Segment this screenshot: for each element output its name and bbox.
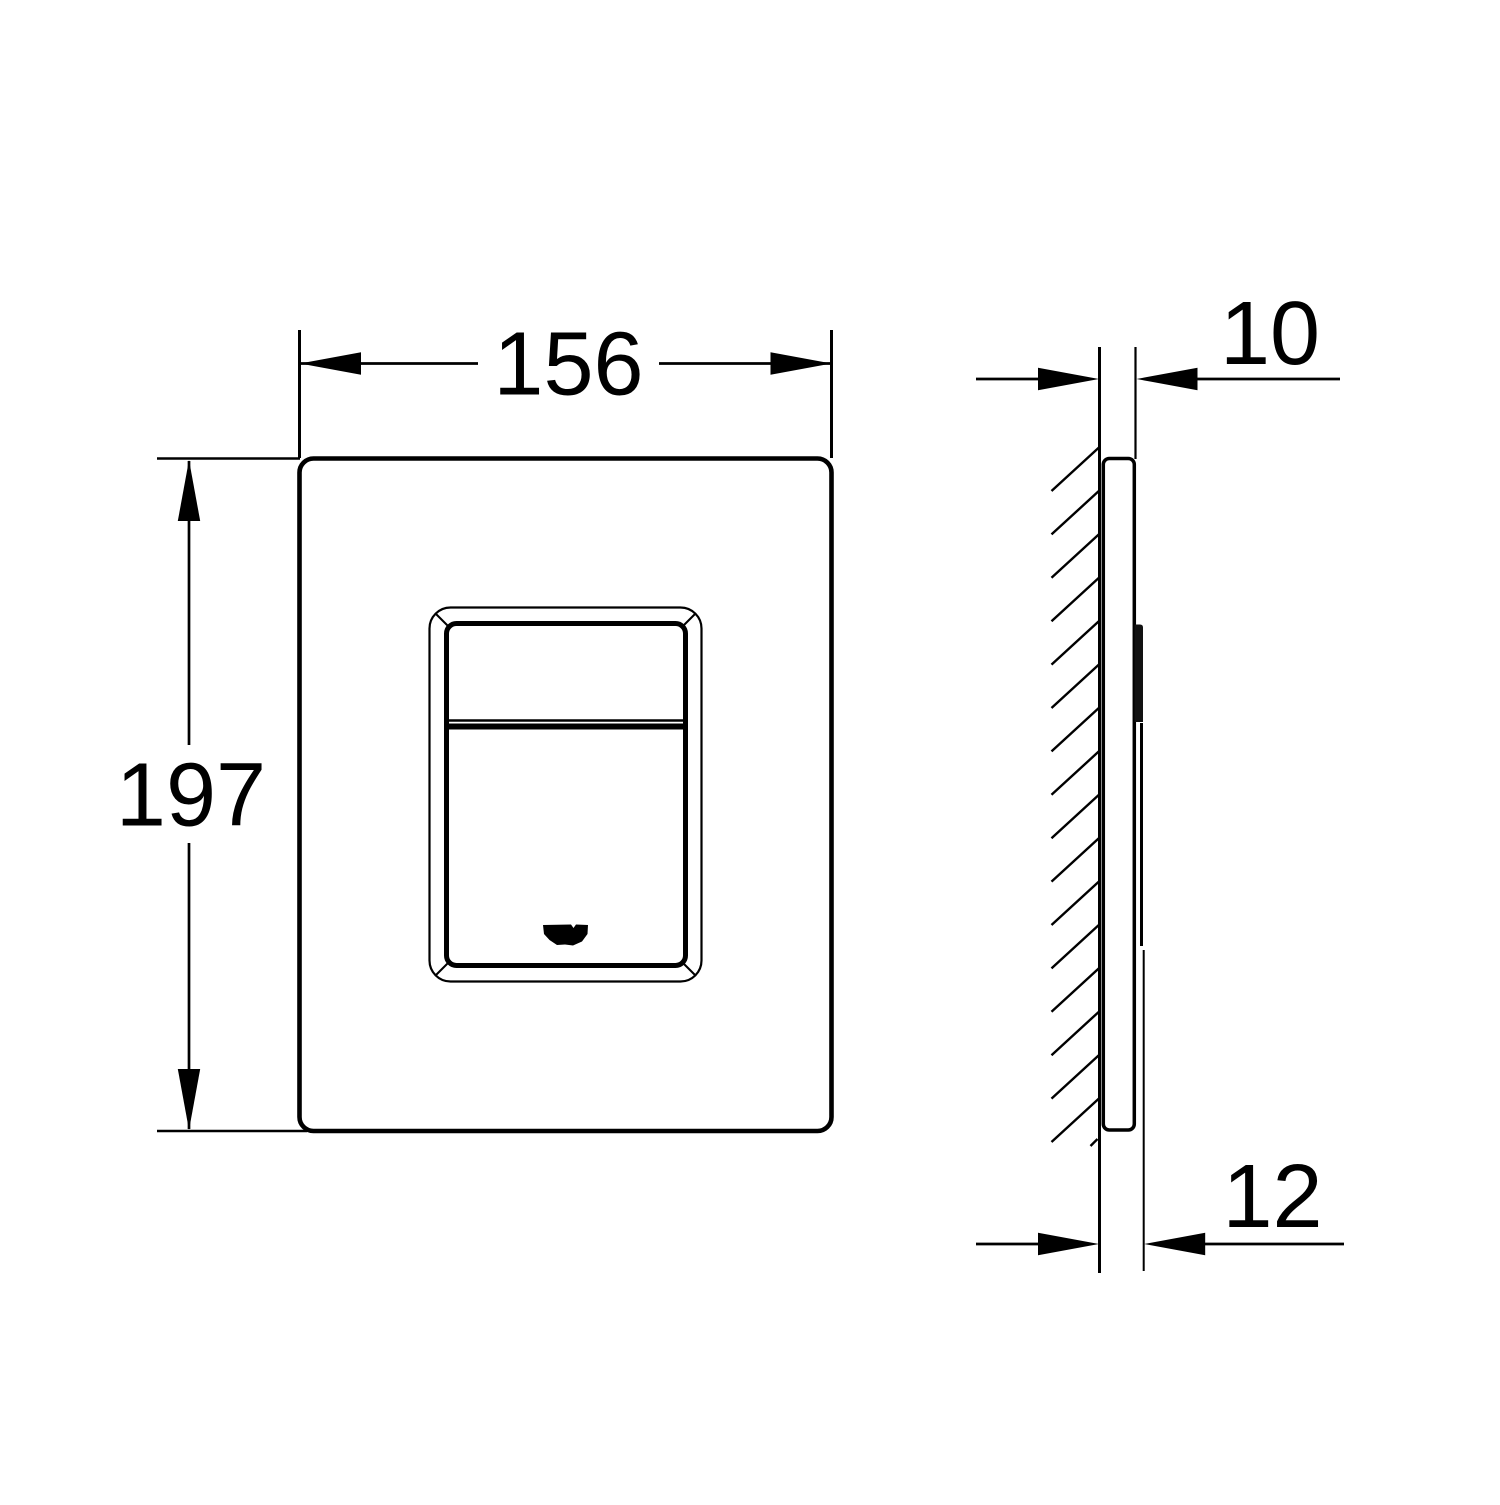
svg-text:12: 12 (1222, 1147, 1322, 1247)
svg-text:10: 10 (1220, 284, 1320, 384)
svg-text:197: 197 (116, 746, 266, 846)
svg-text:156: 156 (493, 315, 643, 415)
